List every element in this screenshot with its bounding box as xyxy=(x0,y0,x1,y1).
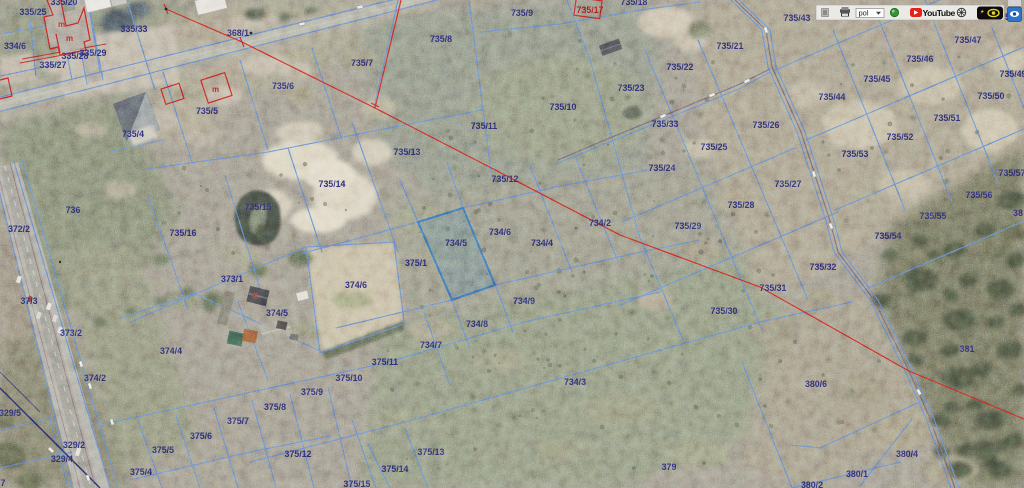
svg-text:pol: pol xyxy=(859,9,869,18)
svg-text:YouTube: YouTube xyxy=(923,8,956,18)
